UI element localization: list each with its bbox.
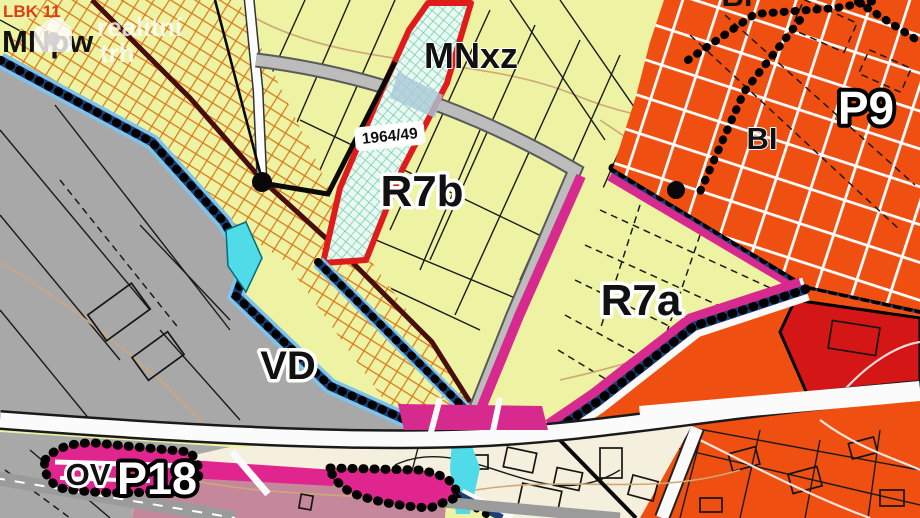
- label-r7b: R7b: [380, 167, 463, 216]
- zoning-map: LBK 11 MNpw MNxz 1964/49 R7b R7a VD BI B…: [0, 0, 920, 518]
- label-ov: OV: [66, 457, 111, 492]
- zone-red: [780, 300, 920, 396]
- label-bi: BI: [747, 121, 778, 156]
- label-p9: P9: [838, 82, 894, 134]
- magenta-junction-strip: [398, 404, 548, 430]
- label-vd: VD: [260, 344, 316, 388]
- label-p18: P18: [117, 453, 197, 504]
- watermark-text-line2: trh: [100, 38, 135, 68]
- map-point-dot-left: [252, 172, 272, 192]
- zoning-map-canvas: LBK 11 MNpw MNxz 1964/49 R7b R7a VD BI B…: [0, 0, 920, 518]
- label-mnxz: MNxz: [424, 35, 518, 76]
- map-point-dot-right: [667, 181, 685, 199]
- label-bi-top-clipped: BI: [722, 0, 753, 13]
- label-r7a: R7a: [601, 276, 682, 325]
